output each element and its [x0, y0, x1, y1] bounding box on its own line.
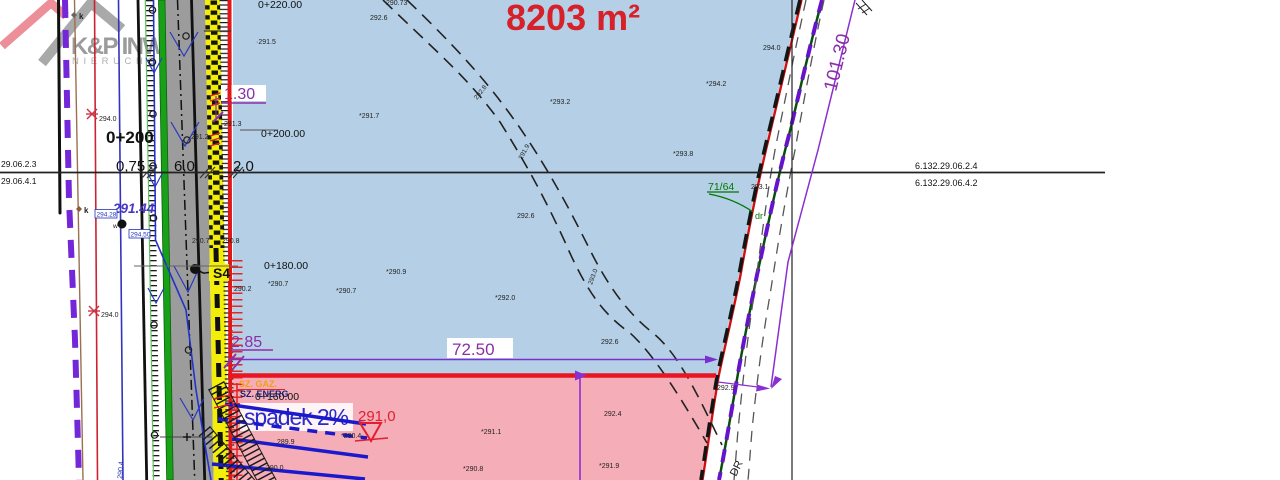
svg-text:292.6: 292.6: [601, 339, 619, 346]
svg-text:*290.9: *290.9: [386, 269, 406, 276]
svg-text:294.50: 294.50: [131, 232, 151, 239]
svg-text:6.132.29.06.2.4: 6.132.29.06.2.4: [915, 161, 978, 171]
svg-text:0+200: 0+200: [106, 128, 154, 147]
svg-text:294.0: 294.0: [99, 116, 117, 123]
svg-text:k: k: [79, 12, 84, 21]
svg-text:0,75: 0,75: [116, 158, 145, 175]
svg-text:291.3: 291.3: [224, 121, 242, 128]
svg-text:294.0: 294.0: [763, 45, 781, 52]
svg-text:w: w: [112, 223, 118, 230]
svg-text:S4: S4: [213, 265, 230, 281]
svg-text:71/64: 71/64: [708, 181, 734, 193]
svg-text:294.28: 294.28: [97, 212, 117, 219]
svg-text:292.9: 292.9: [717, 385, 735, 392]
svg-text:6.132.29.06.4.2: 6.132.29.06.4.2: [915, 178, 978, 188]
svg-text:29.06.4.1: 29.06.4.1: [1, 176, 37, 186]
svg-text:*292.0: *292.0: [495, 295, 515, 302]
svg-text:292.4: 292.4: [604, 411, 622, 418]
svg-text:0+220.00: 0+220.00: [258, 0, 302, 11]
svg-text:*291.7: *291.7: [359, 113, 379, 120]
svg-text:291.44: 291.44: [112, 201, 155, 216]
svg-text:·291.5: ·291.5: [256, 39, 276, 46]
svg-text:290.8: 290.8: [222, 238, 240, 245]
svg-text:0+180.00: 0+180.00: [264, 260, 308, 272]
svg-text:294.0: 294.0: [101, 312, 119, 319]
svg-text:293.1: 293.1: [751, 184, 769, 191]
svg-text:*290.4: *290.4: [341, 433, 361, 440]
svg-text:292.6: 292.6: [370, 15, 388, 22]
svg-text:290.7: 290.7: [192, 238, 210, 245]
svg-text:72.50: 72.50: [452, 340, 495, 359]
svg-text:290.2: 290.2: [234, 286, 252, 293]
svg-text:*290.7: *290.7: [336, 288, 356, 295]
svg-text:k: k: [84, 206, 89, 215]
svg-text:*293.8: *293.8: [673, 151, 693, 158]
svg-text:*291.1: *291.1: [481, 429, 501, 436]
svg-text:SZ. GAZ.: SZ. GAZ.: [239, 379, 277, 389]
svg-text:8203 m²: 8203 m²: [506, 0, 640, 38]
svg-text:*293.2: *293.2: [550, 99, 570, 106]
svg-text:290.73: 290.73: [386, 0, 408, 7]
svg-text:*291.9: *291.9: [599, 463, 619, 470]
svg-text:2.85: 2.85: [231, 334, 262, 351]
svg-text:289.9: 289.9: [277, 439, 295, 446]
svg-text:dr: dr: [755, 211, 763, 221]
svg-text:*294.2: *294.2: [706, 81, 726, 88]
svg-text:*290.8: *290.8: [463, 466, 483, 473]
svg-text:291.2: 291.2: [191, 134, 209, 141]
svg-text:292.6: 292.6: [517, 213, 535, 220]
svg-text:2,0: 2,0: [233, 158, 254, 175]
svg-text:SZ. ENERG: SZ. ENERG: [240, 389, 289, 399]
svg-text:6,0: 6,0: [174, 158, 195, 175]
svg-text:29.06.2.3: 29.06.2.3: [1, 159, 37, 169]
svg-text:*290.7: *290.7: [268, 281, 288, 288]
